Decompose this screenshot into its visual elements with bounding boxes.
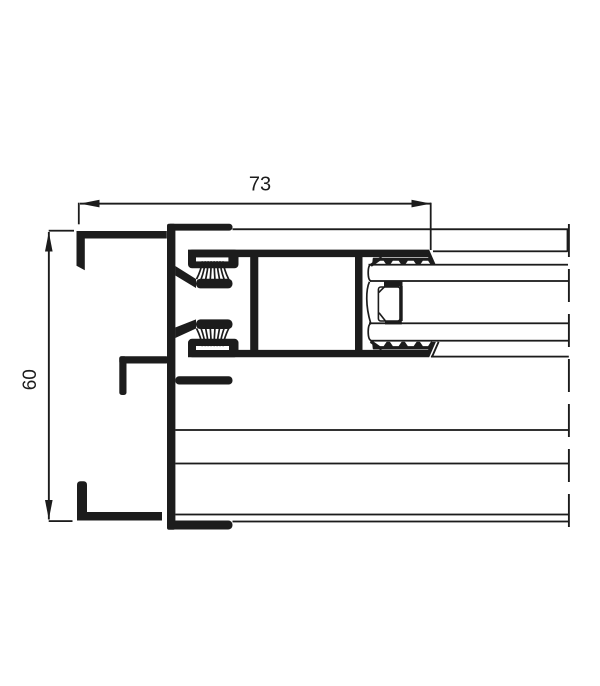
- svg-text:60: 60: [20, 369, 41, 390]
- svg-text:73: 73: [249, 174, 271, 196]
